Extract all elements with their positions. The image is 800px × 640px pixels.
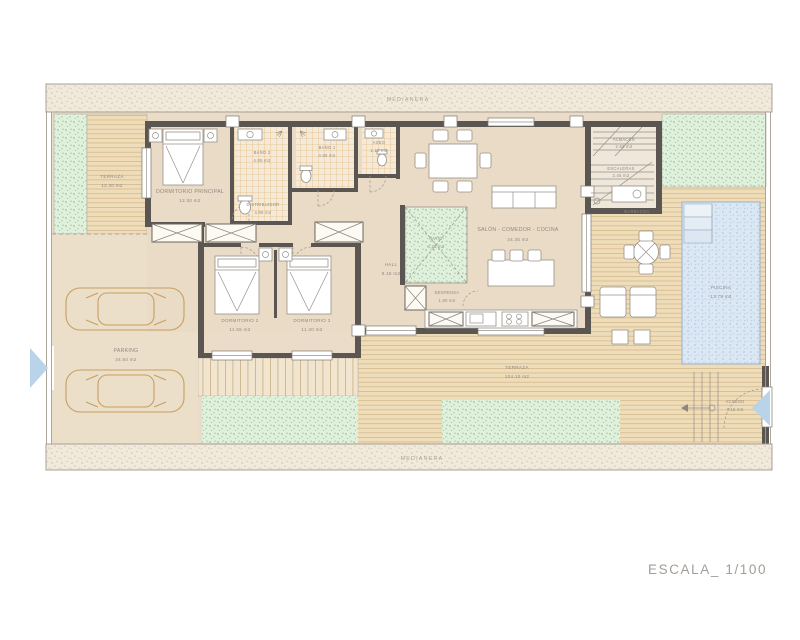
garden-top-right bbox=[662, 114, 766, 187]
hall-area: 9.15 m2 bbox=[382, 271, 401, 276]
terraza-top-area: 12.30 m2 bbox=[101, 183, 123, 188]
dormitorio3-name: DORMITORIO 3 bbox=[293, 318, 330, 323]
kitchen-counter bbox=[425, 310, 577, 328]
pillar-marker bbox=[352, 325, 365, 336]
window-dormitorio3-south bbox=[292, 351, 332, 360]
pillar-marker bbox=[581, 296, 594, 307]
floor-plan-page: MEDIANERA MEDIANERA TERRAZA 12.30 m2 DOR… bbox=[0, 0, 800, 640]
floor-plan-drawing: MEDIANERA MEDIANERA TERRAZA 12.30 m2 DOR… bbox=[0, 0, 800, 640]
despensa-area: 1.80 m2 bbox=[439, 298, 456, 303]
terraza-top-name: TERRAZA bbox=[100, 174, 124, 179]
barbacoa-counter bbox=[612, 186, 646, 202]
sofa bbox=[492, 186, 556, 208]
dormitorio2-area: 11.55 m2 bbox=[229, 327, 250, 332]
patio-area: 4.20 m2 bbox=[428, 244, 445, 249]
distribuidor-area: 4.95 m2 bbox=[255, 210, 272, 215]
hall-name: HALL bbox=[385, 262, 398, 267]
glass-door-salon-east bbox=[582, 214, 591, 292]
pillar-marker bbox=[226, 116, 239, 127]
dormitorio2-name: DORMITORIO 2 bbox=[221, 318, 258, 323]
terraza-main-name: TERRAZA bbox=[505, 365, 529, 370]
pool bbox=[682, 202, 760, 364]
bano1-name: BAÑO 1 bbox=[319, 145, 336, 150]
barbacoa-name: BARBACOA bbox=[624, 209, 649, 214]
door-gap-dormitorio3 bbox=[293, 242, 311, 248]
escaleras-area: 2.45 m2 bbox=[613, 173, 630, 178]
piscina-name: PISCINA bbox=[711, 285, 732, 290]
salon-name: SALÓN - COMEDOR - COCINA bbox=[477, 226, 559, 233]
patio-name: PATIO bbox=[429, 236, 442, 241]
pillar-marker bbox=[352, 116, 365, 127]
acceso-name: ACCESO bbox=[725, 399, 744, 404]
bed-dormitorio2 bbox=[215, 256, 259, 314]
almacen-name: ALMACÉN bbox=[613, 137, 635, 142]
salon-area: 34.35 m2 bbox=[507, 237, 529, 242]
bano1-area: 4.85 m2 bbox=[319, 153, 336, 158]
door-gap-dormitorio2 bbox=[241, 242, 259, 248]
pillar-marker bbox=[570, 116, 583, 127]
acceso-area: 7.15 m2 bbox=[727, 407, 744, 412]
glass-door-hall-south bbox=[366, 326, 416, 335]
dormitorio-principal-name: DORMITORIO PRINCIPAL bbox=[156, 189, 224, 195]
slat-deck-strip bbox=[198, 358, 358, 396]
window-salon-north bbox=[488, 118, 534, 126]
medianera-bottom-label: MEDIANERA bbox=[401, 456, 444, 462]
terraza-main-area: 104.10 m2 bbox=[505, 374, 530, 379]
garden-bottom-center bbox=[442, 400, 620, 443]
pillar-marker bbox=[581, 186, 594, 197]
distribuidor-name: DISTRIBUIDOR bbox=[247, 202, 280, 207]
almacen-area: 2.65 m2 bbox=[616, 144, 633, 149]
despensa-name: DESPENSA bbox=[435, 290, 460, 295]
aseo-name: ASEO bbox=[373, 140, 386, 145]
piscina-area: 13.75 m2 bbox=[710, 294, 732, 299]
terraza-top-green bbox=[54, 114, 87, 234]
dormitorio-principal-area: 12.30 m2 bbox=[179, 198, 201, 203]
bano2-area: 4.85 m2 bbox=[254, 158, 271, 163]
medianera-top-label: MEDIANERA bbox=[387, 97, 430, 103]
entry-arrow-left-icon bbox=[30, 348, 48, 388]
pool-steps bbox=[684, 204, 712, 243]
aseo-area: 2.10 m2 bbox=[371, 148, 388, 153]
plot-edge-left bbox=[47, 112, 52, 444]
bano2-name: BAÑO 2 bbox=[254, 150, 271, 155]
stove bbox=[502, 312, 528, 326]
window-dormitorio2-south bbox=[212, 351, 252, 360]
parking-area: 34.50 m2 bbox=[115, 357, 137, 362]
garden-bottom-left bbox=[202, 396, 358, 443]
parking-name: PARKING bbox=[113, 348, 138, 354]
bed-dormitorio3 bbox=[287, 256, 331, 314]
pillar-marker bbox=[444, 116, 457, 127]
scale-label: ESCALA_ 1/100 bbox=[648, 562, 767, 577]
window-terraza-dormitorio bbox=[142, 148, 151, 198]
dormitorio3-area: 11.30 m2 bbox=[301, 327, 322, 332]
escaleras-name: ESCALERAS bbox=[607, 166, 634, 171]
